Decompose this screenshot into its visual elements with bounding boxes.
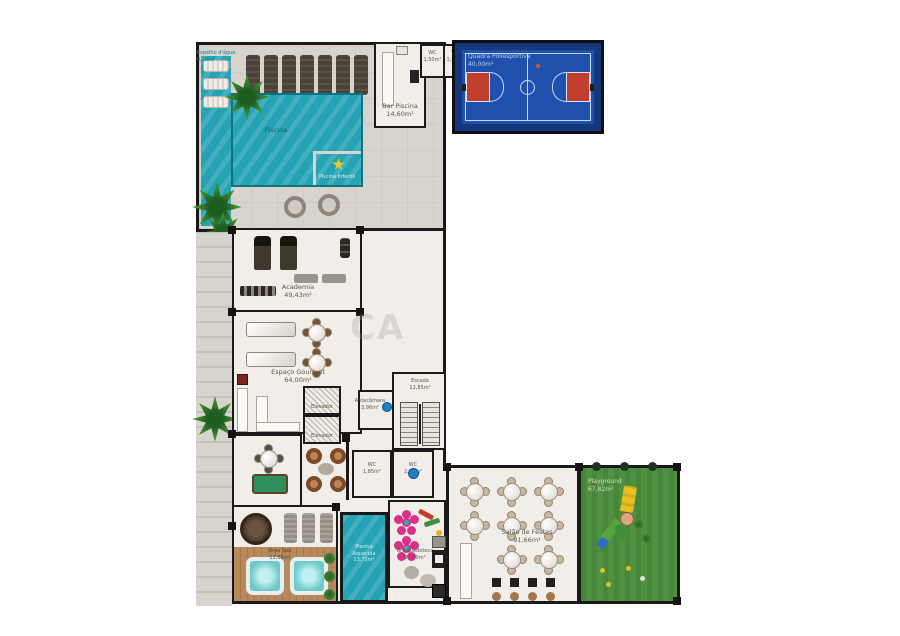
column [228, 430, 236, 438]
plant-icon [634, 520, 643, 529]
party-table-icon [460, 511, 490, 541]
chair-icon [254, 454, 263, 463]
wall [346, 438, 349, 500]
stair-flight [422, 402, 440, 446]
column [228, 226, 236, 234]
chair-icon [323, 328, 332, 337]
chair-icon [264, 444, 273, 453]
toy-dot-icon [626, 566, 631, 571]
spa-lounger-icon [302, 513, 315, 543]
buffet-counter [460, 543, 472, 599]
room-name: Academia [268, 283, 328, 291]
sun-lounger-icon [336, 55, 350, 95]
chair-icon [544, 477, 553, 486]
room-area: 12,85m² [398, 385, 442, 392]
chair-icon [534, 487, 543, 496]
watermark: CA [350, 308, 405, 348]
armchair-icon [330, 448, 346, 464]
plant-icon [324, 571, 335, 582]
party-table-icon [460, 477, 490, 507]
chair-icon [507, 545, 516, 554]
spa-lounger-icon [284, 513, 297, 543]
accessibility-icon [408, 468, 419, 479]
room-area: 49,43m² [268, 291, 328, 299]
stool-seat-icon [528, 592, 537, 601]
stair-rail [419, 404, 421, 444]
column [228, 522, 236, 530]
sauna-barrel-icon [240, 513, 272, 545]
room-area: 12,65m² [252, 555, 308, 562]
room-label-piscina-infantil: Piscina Infantil [313, 174, 361, 181]
column [332, 503, 340, 511]
room-label-elevador-b: Elevador [303, 433, 341, 440]
lounge-chair-icon [318, 194, 340, 216]
room-area: 1,50m² [422, 57, 443, 64]
chair-icon [302, 328, 311, 337]
chair-icon [507, 498, 516, 507]
court-key-left [466, 72, 490, 102]
coffee-table-icon [318, 463, 334, 475]
toy-dot-icon [600, 568, 605, 573]
seesaw-icon [424, 518, 441, 528]
chair-icon [470, 498, 479, 507]
hot-tub-icon [290, 557, 328, 595]
kitchen-island [256, 422, 300, 432]
chair-icon [302, 358, 311, 367]
room-label-wc-a: WC 1,85m² [354, 462, 390, 475]
chair-icon [481, 521, 490, 530]
chair-icon [323, 358, 332, 367]
service-box-icon [432, 536, 446, 548]
hoop-icon [462, 84, 466, 91]
fridge-icon [410, 70, 419, 83]
plant-icon [642, 534, 651, 543]
room-name: Piscina [246, 126, 306, 134]
wet-lounger-icon [203, 78, 229, 90]
room-area: 1,85m² [354, 469, 390, 476]
party-table-icon [534, 545, 564, 575]
room-name: Espaço Gourmet [266, 368, 330, 376]
toy-dot-icon [640, 576, 645, 581]
column [228, 308, 236, 316]
party-table-icon [534, 477, 564, 507]
chair-icon [544, 566, 553, 575]
room-name: Bar Piscina [372, 102, 428, 110]
room-label-quadra: Quadra Poliesportiva 40,00m² [468, 53, 552, 69]
stool-seat-icon [546, 592, 555, 601]
exercise-bike-icon [340, 238, 350, 258]
spa-lounger-icon [320, 513, 333, 543]
room-name: Piscina Infantil [313, 174, 361, 181]
bar-counter [382, 52, 394, 106]
exercise-bike-icon [322, 238, 332, 258]
bush-icon [648, 462, 657, 471]
chair-icon [544, 511, 553, 520]
kitchen-counter [237, 388, 248, 432]
service-box-icon [432, 584, 446, 598]
elevator-shaft [303, 415, 341, 444]
hoop-icon [590, 84, 594, 91]
room-label-espaco-gourmet: Espaço Gourmet 64,00m² [266, 368, 330, 385]
column [443, 597, 451, 605]
bar-stools [492, 578, 562, 604]
round-table-icon [302, 318, 332, 348]
chair-icon [507, 477, 516, 486]
column [356, 226, 364, 234]
armchair-icon [306, 476, 322, 492]
room-name: Salão de Festas [492, 528, 562, 536]
pool-table [252, 474, 288, 494]
room-label-elevador-a: Elevador [303, 404, 341, 411]
stool-icon [492, 578, 501, 587]
chair-icon [507, 566, 516, 575]
room-label-escada: Escada 12,85m² [398, 378, 442, 391]
bush-icon [592, 462, 601, 471]
sun-lounger-icon [354, 55, 368, 95]
chair-icon [470, 477, 479, 486]
room-name: Elevador [303, 433, 341, 440]
chair-icon [534, 555, 543, 564]
gym-mat-icon [322, 274, 346, 283]
court-key-right [566, 72, 590, 102]
chair-icon [312, 339, 321, 348]
sink-icon [396, 46, 408, 55]
column [673, 463, 681, 471]
chair-icon [470, 532, 479, 541]
armchair-icon [330, 476, 346, 492]
room-name: Playground [588, 478, 644, 486]
stool-seat-icon [510, 592, 519, 601]
sun-lounger-icon [282, 55, 296, 95]
room-label-academia: Academia 49,43m² [268, 283, 328, 300]
stool-icon [528, 578, 537, 587]
chair-icon [518, 555, 527, 564]
chair-icon [518, 487, 527, 496]
elevator-shaft [303, 386, 341, 415]
party-table-icon [497, 477, 527, 507]
grill-icon [237, 374, 248, 385]
room-label-bar-piscina: Bar Piscina 14,60m² [372, 102, 428, 119]
chair-icon [481, 487, 490, 496]
chair-icon [312, 318, 321, 327]
room-label-wc-top-a: WC 1,50m² [422, 50, 443, 63]
column [575, 463, 583, 471]
chair-icon [555, 555, 564, 564]
sun-lounger-icon [318, 55, 332, 95]
chair-icon [544, 498, 553, 507]
stool-icon [510, 578, 519, 587]
chair-icon [555, 487, 564, 496]
chair-icon [470, 511, 479, 520]
chair-icon [312, 348, 321, 357]
room-label-piscina: Piscina [246, 126, 306, 134]
toy-dot-icon [606, 582, 611, 587]
column [673, 597, 681, 605]
beanbag-icon [404, 566, 419, 579]
column [342, 434, 350, 442]
accessibility-icon [382, 402, 392, 412]
floor-plan: Espelho d'água 8,15m² Piscina Piscina In… [0, 0, 900, 636]
chair-icon [544, 545, 553, 554]
lounge-chair-icon [284, 196, 306, 218]
column [443, 463, 451, 471]
room-name: Elevador [303, 404, 341, 411]
chair-icon [264, 465, 273, 474]
dining-table [246, 352, 296, 367]
chair-icon [497, 487, 506, 496]
room-area: 91,66m² [492, 536, 562, 544]
wet-lounger-icon [203, 96, 229, 108]
room-label-area-spa: Área Spa 12,65m² [252, 548, 308, 561]
chair-icon [460, 521, 469, 530]
stair-flight [400, 402, 418, 446]
room-area: 14,60m² [372, 110, 428, 118]
treadmill-icon [254, 236, 271, 270]
room-label-salao-festas: Salão de Festas 91,66m² [492, 528, 562, 545]
armchair-icon [306, 448, 322, 464]
sun-lounger-icon [264, 55, 278, 95]
room-name: Quadra Poliesportiva [468, 53, 552, 61]
room-area: 64,00m² [266, 376, 330, 384]
chair-icon [460, 487, 469, 496]
room-label-piscina-aquecida: Piscina Aquecida 13,75m² [340, 544, 388, 564]
court-center-circle [520, 80, 535, 95]
bush-icon [620, 462, 629, 471]
chair-icon [275, 454, 284, 463]
hot-tub-icon [246, 557, 284, 595]
chair-icon [507, 511, 516, 520]
stool-seat-icon [492, 592, 501, 601]
plant-icon [324, 589, 335, 600]
game-table-icon [254, 444, 284, 474]
service-box-icon [435, 555, 443, 563]
treadmill-icon [280, 236, 297, 270]
gym-mat-icon [294, 274, 318, 283]
plant-icon [324, 553, 335, 564]
dining-table [246, 322, 296, 337]
chair-icon [497, 555, 506, 564]
room-area: 40,00m² [468, 61, 552, 69]
sun-lounger-icon [300, 55, 314, 95]
party-table-icon [497, 545, 527, 575]
kids-table-icon [402, 518, 411, 527]
room-area: 13,75m² [340, 557, 388, 564]
stool-icon [546, 578, 555, 587]
